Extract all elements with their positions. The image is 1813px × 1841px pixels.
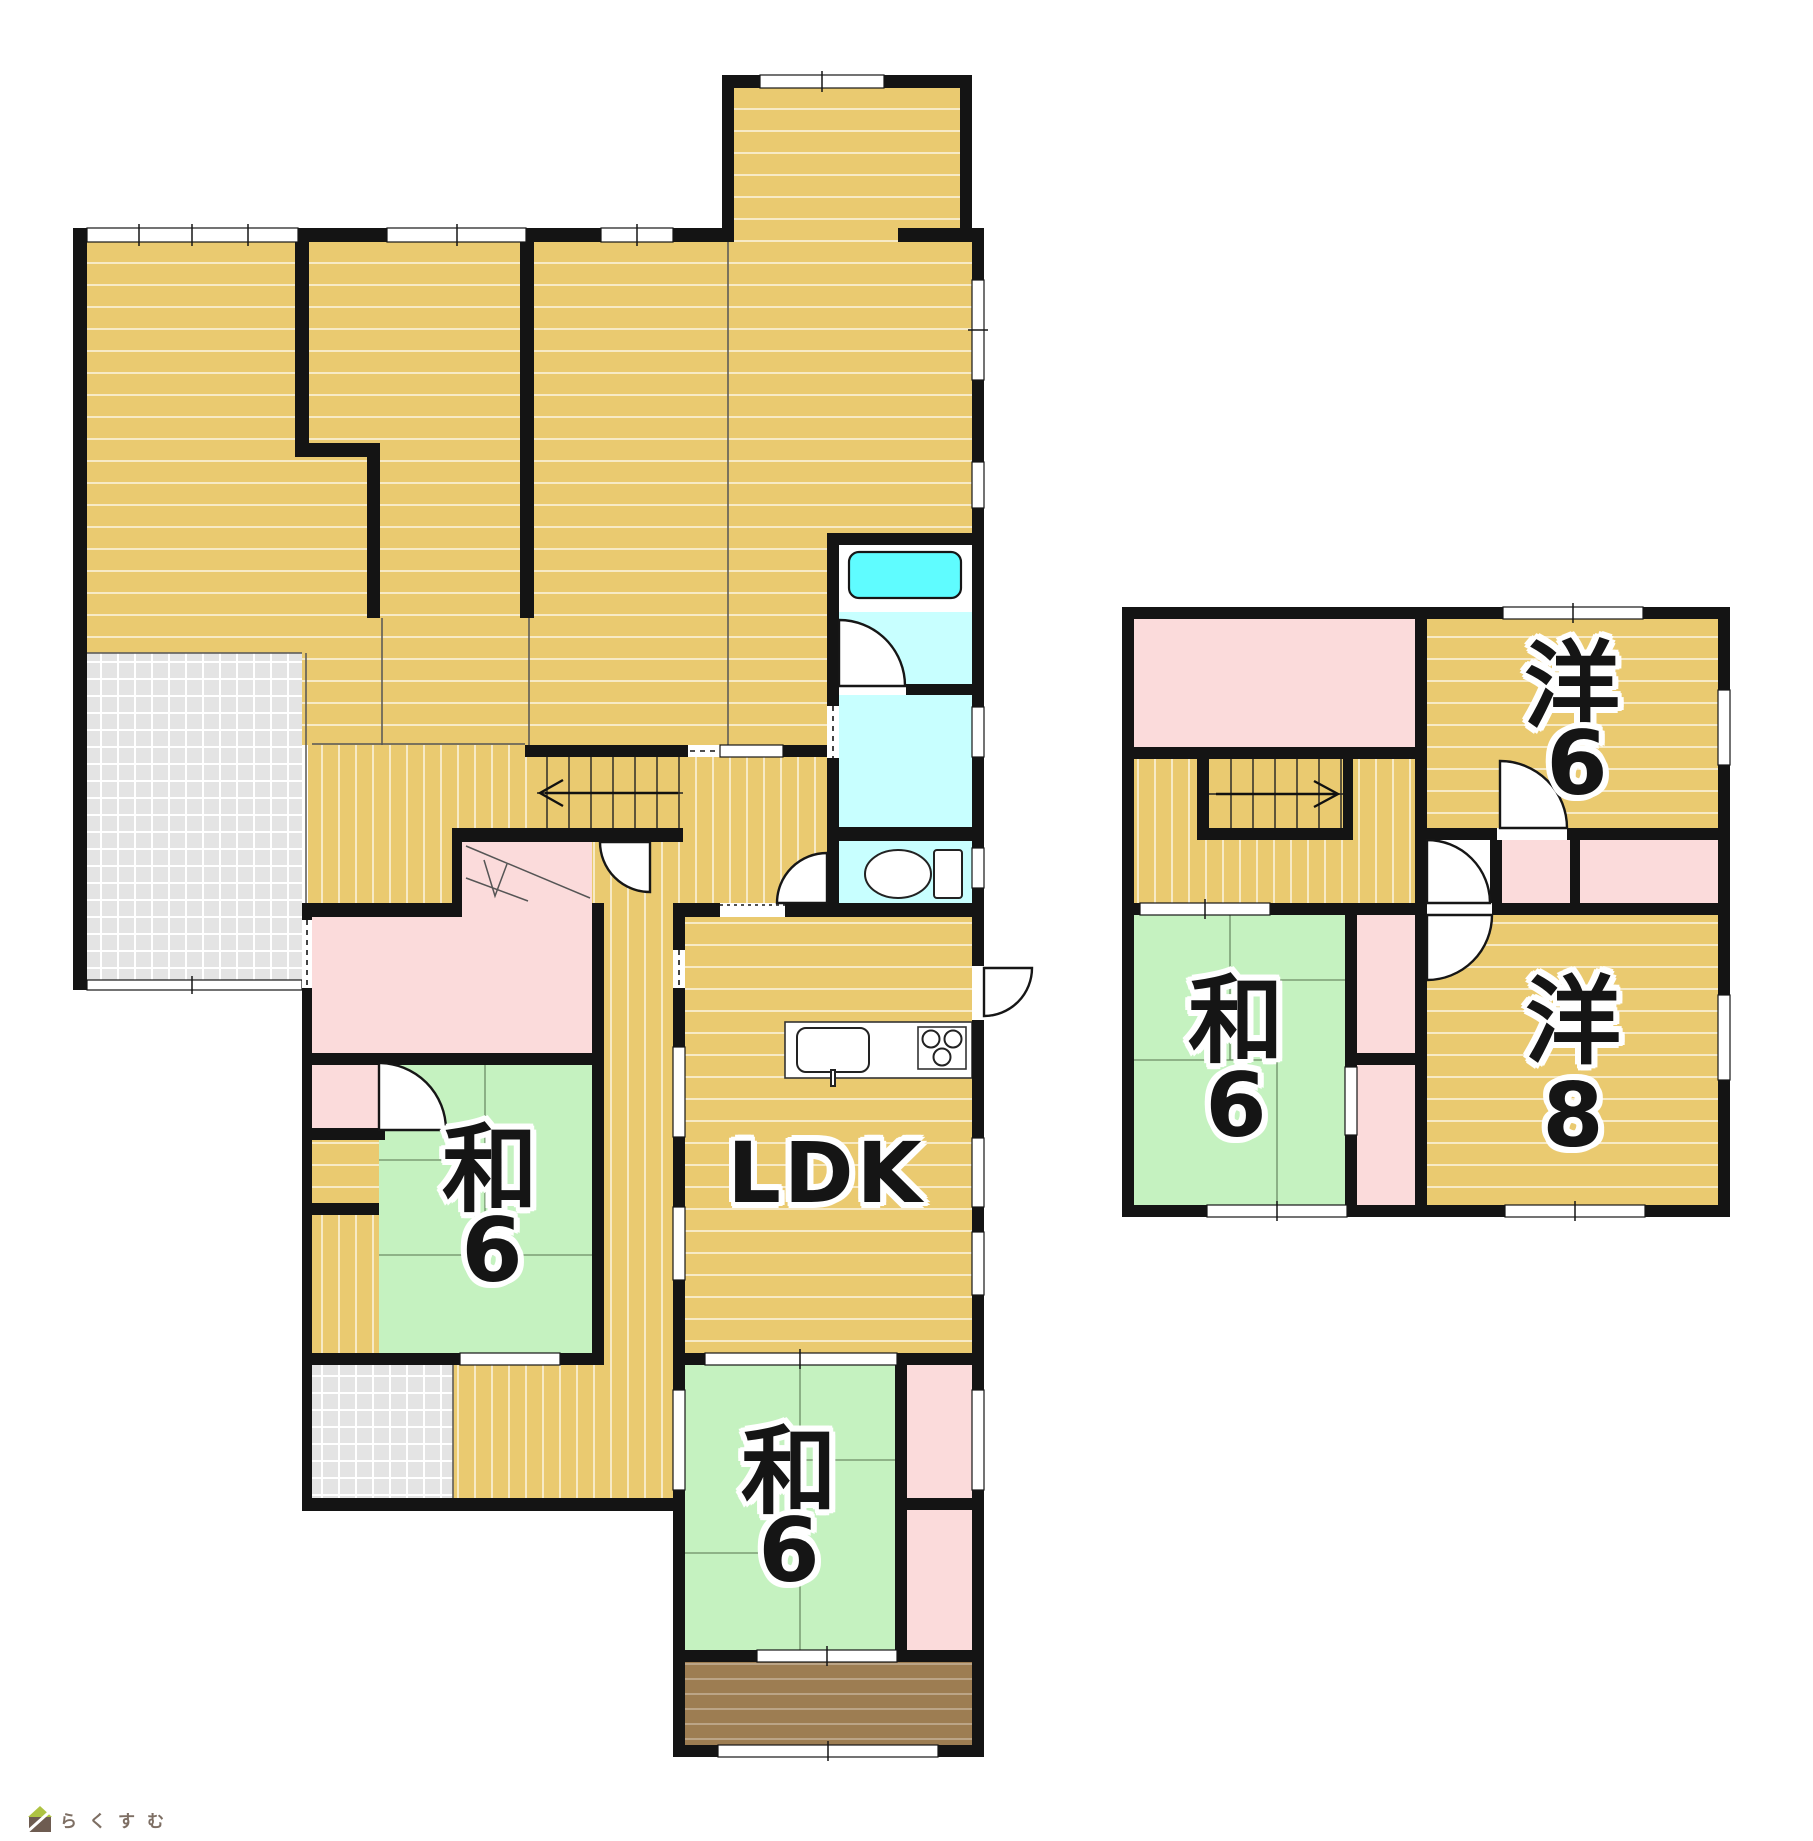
room-size-youshitsu-8: 8	[1542, 1072, 1603, 1160]
room-size-washitsu-2f: 6	[1205, 1062, 1266, 1150]
storage-2f-floor	[1134, 619, 1415, 747]
toilet	[865, 850, 962, 898]
kitchen-counter	[785, 1022, 972, 1086]
stairs-1f	[537, 757, 683, 828]
closet-2f-a	[1502, 840, 1570, 903]
room-label-ldk: LDK	[727, 1131, 924, 1215]
closet-strip-floor	[312, 1065, 379, 1128]
stove	[918, 1027, 966, 1069]
bathtub	[849, 552, 961, 598]
kitchen-sink	[797, 1028, 869, 1072]
floor-1	[73, 71, 1032, 1761]
closet-b-floor	[907, 1510, 972, 1650]
floor-plan-page: LDK 和 6 和 6 洋 6 和 6 洋 8 らくすむ	[0, 0, 1813, 1841]
washroom-floor	[839, 695, 972, 827]
house-icon	[28, 1806, 52, 1832]
tokonoma-floor	[312, 1140, 379, 1203]
north-bay-floor	[734, 88, 960, 242]
stairs-2f	[1209, 759, 1343, 828]
room-size-youshitsu-6: 6	[1546, 720, 1607, 808]
room-size-washitsu-south: 6	[758, 1507, 819, 1595]
room-size-washitsu-west: 6	[461, 1207, 522, 1295]
entrance-door-gap	[972, 966, 984, 1020]
terrace-floor	[87, 653, 302, 990]
entrance-door	[984, 968, 1032, 1016]
engawa-porch-floor	[685, 1662, 972, 1745]
floor-plan-drawing	[0, 0, 1813, 1841]
room-label-youshitsu-8: 洋	[1525, 974, 1621, 1070]
closet-a-floor	[907, 1365, 972, 1498]
hallway-south-floor	[453, 1363, 673, 1498]
terrace-south-floor	[312, 1363, 453, 1498]
logo-text: らくすむ	[60, 1807, 176, 1832]
rakusumu-logo: らくすむ	[28, 1806, 176, 1832]
side-board-floor	[312, 1215, 379, 1353]
closet-2f-b	[1580, 840, 1718, 903]
